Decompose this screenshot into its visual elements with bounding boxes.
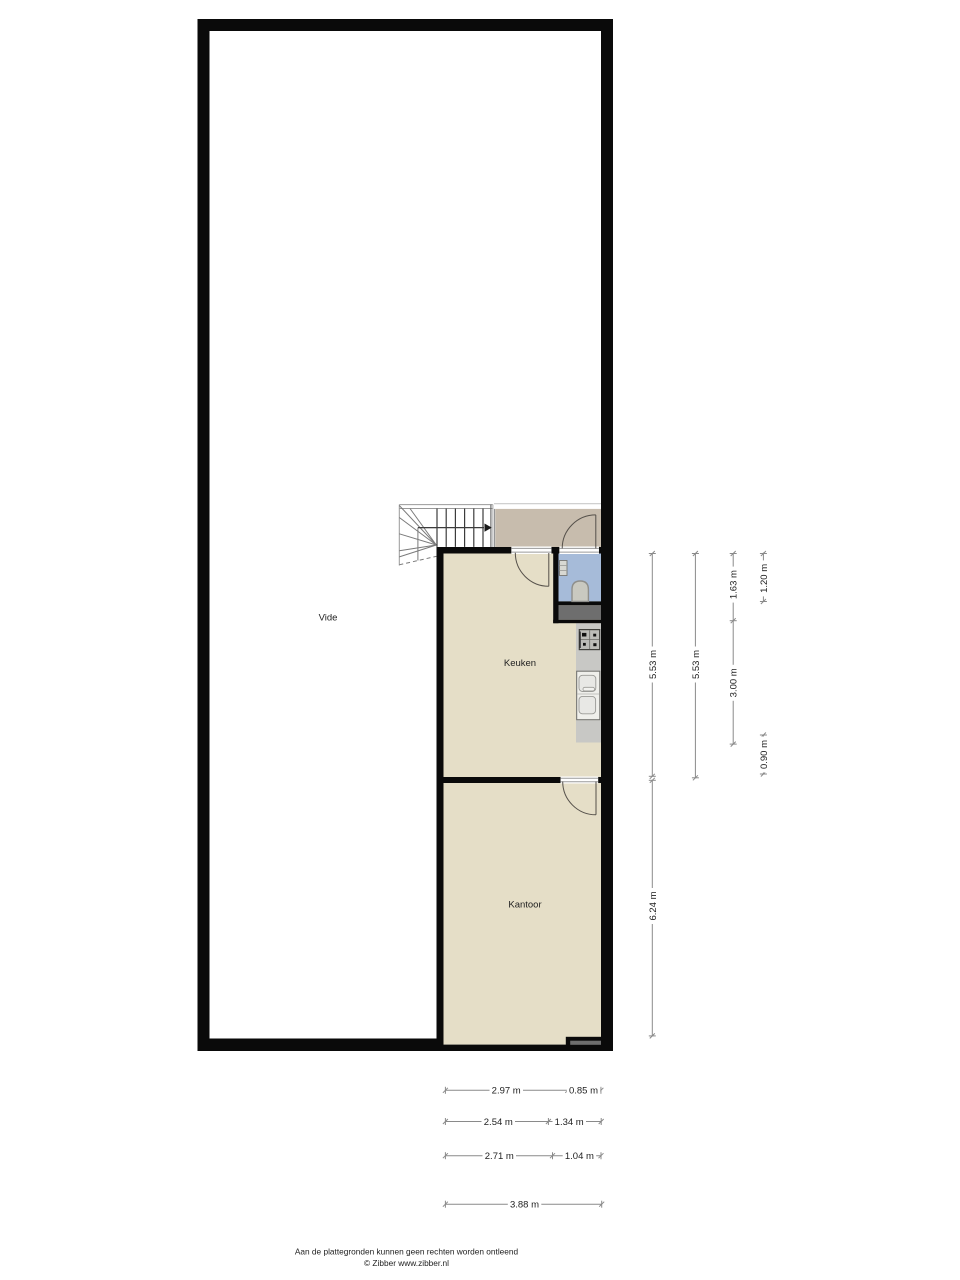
svg-text:2.54 m: 2.54 m [484,1117,513,1128]
svg-text:1.20 m: 1.20 m [759,564,770,593]
svg-text:Aan de plattegronden kunnen ge: Aan de plattegronden kunnen geen rechten… [295,1246,519,1256]
svg-text:2.97 m: 2.97 m [492,1086,521,1097]
svg-text:1.34 m: 1.34 m [555,1117,584,1128]
svg-text:6.24 m: 6.24 m [648,891,659,920]
svg-text:Keuken: Keuken [504,658,536,669]
svg-text:3.00 m: 3.00 m [729,668,740,697]
svg-text:1.63 m: 1.63 m [729,570,740,599]
svg-text:Kantoor: Kantoor [508,900,541,911]
svg-text:© Zibber www.zibber.nl: © Zibber www.zibber.nl [364,1258,449,1268]
svg-text:1.04 m: 1.04 m [565,1151,594,1162]
svg-text:0.90 m: 0.90 m [759,740,770,769]
svg-text:0.85 m: 0.85 m [569,1086,598,1097]
svg-text:3.88 m: 3.88 m [510,1200,539,1211]
svg-text:5.53 m: 5.53 m [648,650,659,679]
svg-text:Vide: Vide [319,613,338,624]
svg-text:5.53 m: 5.53 m [691,650,702,679]
svg-text:2.71 m: 2.71 m [485,1151,514,1162]
